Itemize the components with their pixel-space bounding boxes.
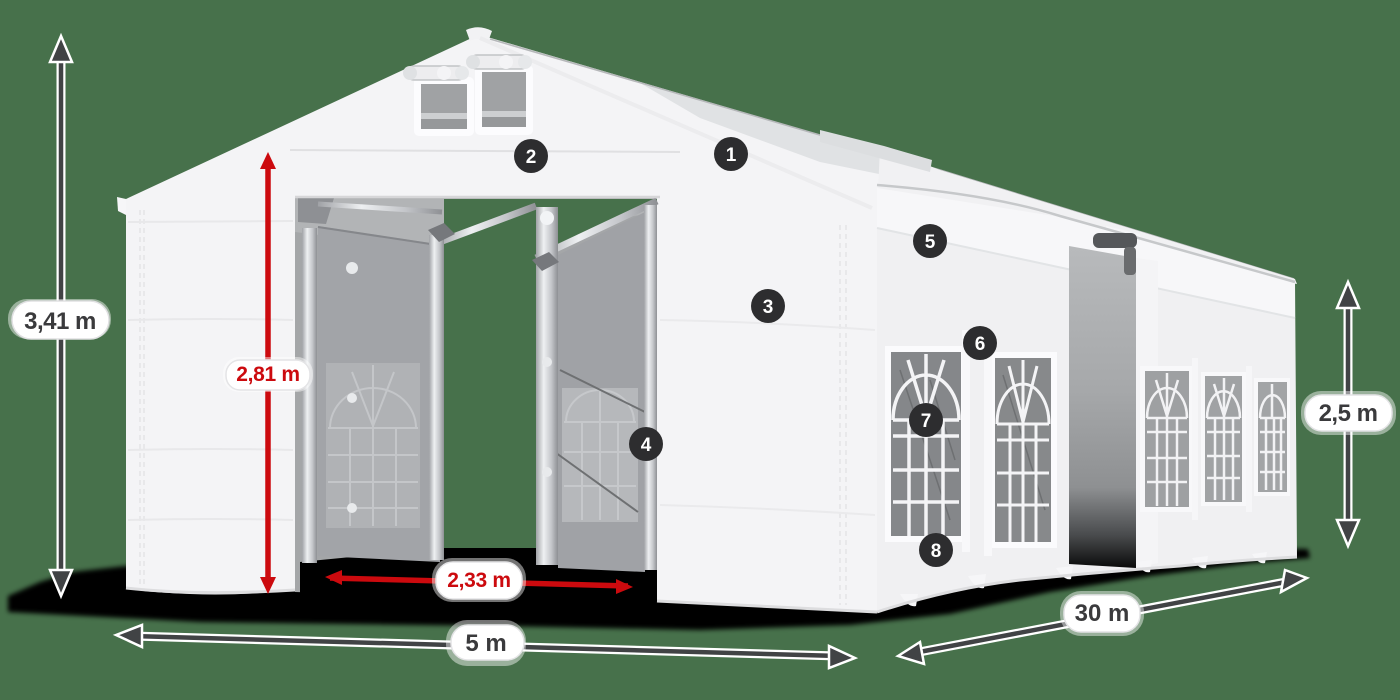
svg-text:5 m: 5 m	[465, 630, 506, 657]
svg-text:30 m: 30 m	[1075, 600, 1130, 627]
svg-text:2,33 m: 2,33 m	[447, 569, 511, 592]
svg-text:2: 2	[526, 147, 537, 168]
svg-text:3,41 m: 3,41 m	[24, 308, 96, 335]
svg-text:5: 5	[925, 232, 936, 253]
svg-text:7: 7	[921, 411, 932, 432]
svg-text:3: 3	[763, 297, 774, 318]
svg-text:2,5 m: 2,5 m	[1319, 400, 1378, 427]
svg-text:6: 6	[975, 334, 986, 355]
svg-text:8: 8	[931, 541, 942, 562]
svg-text:1: 1	[726, 145, 737, 166]
svg-text:2,81 m: 2,81 m	[236, 363, 300, 386]
svg-text:4: 4	[641, 435, 652, 456]
